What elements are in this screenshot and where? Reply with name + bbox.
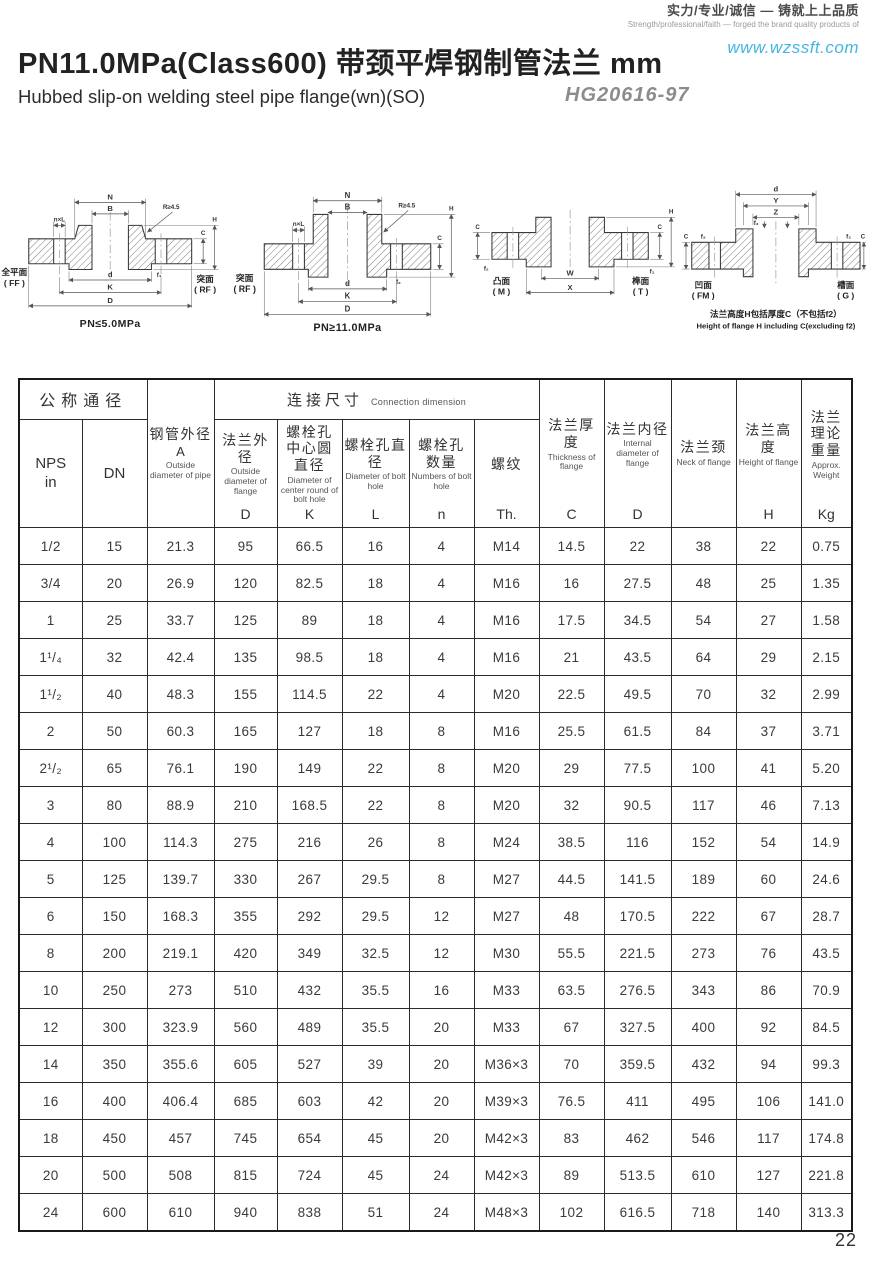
table-cell: 89 bbox=[539, 1157, 604, 1194]
table-cell: 221.8 bbox=[801, 1157, 852, 1194]
table-cell: 406.4 bbox=[147, 1083, 214, 1120]
page-number: 22 bbox=[835, 1230, 857, 1251]
table-cell: 4 bbox=[409, 602, 474, 639]
face-label-g-cn: 槽面 bbox=[837, 279, 855, 290]
table-cell: 1/2 bbox=[19, 528, 82, 565]
table-cell: 116 bbox=[604, 824, 671, 861]
table-cell: 42 bbox=[342, 1083, 409, 1120]
header-group-nominal: 公称通径 bbox=[19, 379, 147, 419]
table-cell: 8 bbox=[409, 861, 474, 898]
table-cell: 165 bbox=[214, 713, 277, 750]
spec-table: 公称通径 钢管外径 A Outside diameter of pipe 连接尺… bbox=[18, 378, 853, 1232]
table-cell: 560 bbox=[214, 1009, 277, 1046]
diagram2-caption: PN≥11.0MPa bbox=[313, 322, 382, 334]
table-cell: 462 bbox=[604, 1120, 671, 1157]
table-cell: 300 bbox=[82, 1009, 147, 1046]
table-cell: 32.5 bbox=[342, 935, 409, 972]
table-cell: 29 bbox=[736, 639, 801, 676]
dim-label-W: W bbox=[567, 268, 575, 277]
table-cell: 88.9 bbox=[147, 787, 214, 824]
face-label-fm-cn: 凹面 bbox=[695, 280, 713, 290]
table-cell: 20 bbox=[82, 565, 147, 602]
table-cell: 95 bbox=[214, 528, 277, 565]
table-cell: 33.7 bbox=[147, 602, 214, 639]
table-cell: 37 bbox=[736, 713, 801, 750]
table-cell: 18 bbox=[342, 565, 409, 602]
dim-label-N: N bbox=[345, 191, 351, 200]
dim-label-H: H bbox=[449, 206, 454, 213]
dim-label-f3-mid: f₃ bbox=[754, 220, 759, 227]
table-cell: 20 bbox=[409, 1009, 474, 1046]
table-cell: M39×3 bbox=[474, 1083, 539, 1120]
table-cell: 29.5 bbox=[342, 861, 409, 898]
table-row: 38088.9210168.5228M203290.5117467.13 bbox=[19, 787, 852, 824]
header-weight: 法兰理论重量 Approx. Weight Kg bbox=[801, 379, 852, 528]
dim-label-C: C bbox=[437, 235, 442, 242]
table-cell: 718 bbox=[671, 1194, 736, 1232]
table-cell: 400 bbox=[82, 1083, 147, 1120]
dim-label-R: R≥4.5 bbox=[163, 204, 180, 211]
table-cell: 16 bbox=[342, 528, 409, 565]
table-cell: 67 bbox=[736, 898, 801, 935]
table-cell: 343 bbox=[671, 972, 736, 1009]
table-cell: 489 bbox=[277, 1009, 342, 1046]
table-cell: 86 bbox=[736, 972, 801, 1009]
table-cell: 65 bbox=[82, 750, 147, 787]
table-cell: 12 bbox=[409, 935, 474, 972]
table-cell: 28.7 bbox=[801, 898, 852, 935]
table-cell: 40 bbox=[82, 676, 147, 713]
table-cell: 32 bbox=[82, 639, 147, 676]
table-cell: 155 bbox=[214, 676, 277, 713]
table-row: 14350355.66055273920M36×370359.54329499.… bbox=[19, 1046, 852, 1083]
table-row: 25060.3165127188M1625.561.584373.71 bbox=[19, 713, 852, 750]
table-cell: 275 bbox=[214, 824, 277, 861]
table-cell: 2¹/₂ bbox=[19, 750, 82, 787]
table-cell: 39 bbox=[342, 1046, 409, 1083]
table-cell: 355 bbox=[214, 898, 277, 935]
table-cell: 139.7 bbox=[147, 861, 214, 898]
table-cell: M27 bbox=[474, 861, 539, 898]
table-cell: 3.71 bbox=[801, 713, 852, 750]
table-cell: 66.5 bbox=[277, 528, 342, 565]
table-cell: 4 bbox=[409, 639, 474, 676]
table-cell: 273 bbox=[671, 935, 736, 972]
flange-diagram-ff-rf: N B n×L R≥4.5 d K D C bbox=[0, 183, 230, 332]
table-row: 2¹/₂6576.1190149228M202977.5100415.20 bbox=[19, 750, 852, 787]
table-cell: 22 bbox=[342, 787, 409, 824]
table-cell: 4 bbox=[409, 528, 474, 565]
table-cell: M42×3 bbox=[474, 1120, 539, 1157]
face-label-t-code: ( T ) bbox=[633, 287, 649, 297]
table-cell: M16 bbox=[474, 639, 539, 676]
table-cell: 600 bbox=[82, 1194, 147, 1232]
table-cell: 420 bbox=[214, 935, 277, 972]
table-cell: 20 bbox=[19, 1157, 82, 1194]
table-row: 12533.712589184M1617.534.554271.58 bbox=[19, 602, 852, 639]
table-cell: 106 bbox=[736, 1083, 801, 1120]
table-cell: 508 bbox=[147, 1157, 214, 1194]
dim-label-R: R≥4.5 bbox=[398, 203, 415, 210]
table-cell: 127 bbox=[277, 713, 342, 750]
page-title: PN11.0MPa(Class600) 带颈平焊钢制管法兰 mm bbox=[18, 40, 663, 82]
dim-label-f2: f₂ bbox=[396, 279, 401, 286]
table-cell: 14 bbox=[19, 1046, 82, 1083]
table-cell: 17.5 bbox=[539, 602, 604, 639]
table-cell: 15 bbox=[82, 528, 147, 565]
table-cell: 22 bbox=[604, 528, 671, 565]
header-flange-od: 法兰外径 Outside diameter of flange D bbox=[214, 419, 277, 528]
dim-label-f2-right: f₂ bbox=[650, 269, 655, 276]
table-cell: M20 bbox=[474, 787, 539, 824]
table-cell: 25 bbox=[736, 565, 801, 602]
table-row: 8200219.142034932.512M3055.5221.52737643… bbox=[19, 935, 852, 972]
flange-diagram-m-t: W X C f₂ C H f₂ 凸面 ( M ) 榫面 ( T ) bbox=[465, 183, 680, 326]
dim-label-f2-left: f₂ bbox=[484, 266, 489, 273]
table-row: 1025027351043235.516M3363.5276.53438670.… bbox=[19, 972, 852, 1009]
table-cell: 51 bbox=[342, 1194, 409, 1232]
face-label-m-code: ( M ) bbox=[493, 287, 511, 297]
table-cell: 18 bbox=[342, 639, 409, 676]
table-cell: 495 bbox=[671, 1083, 736, 1120]
table-cell: 513.5 bbox=[604, 1157, 671, 1194]
spec-table-body: 1/21521.39566.5164M1414.52238220.753/420… bbox=[19, 528, 852, 1232]
table-cell: 24 bbox=[409, 1157, 474, 1194]
table-cell: 76.1 bbox=[147, 750, 214, 787]
table-cell: 3 bbox=[19, 787, 82, 824]
dim-label-C-left: C bbox=[475, 224, 480, 231]
table-cell: 22 bbox=[342, 676, 409, 713]
table-cell: 5.20 bbox=[801, 750, 852, 787]
table-row: 246006109408385124M48×3102616.5718140313… bbox=[19, 1194, 852, 1232]
table-cell: 450 bbox=[82, 1120, 147, 1157]
dim-label-f1: f₁ bbox=[157, 272, 162, 279]
table-cell: M20 bbox=[474, 676, 539, 713]
table-cell: 200 bbox=[82, 935, 147, 972]
table-cell: 67 bbox=[539, 1009, 604, 1046]
face-label-rf-code: ( RF ) bbox=[233, 284, 256, 294]
table-cell: 100 bbox=[671, 750, 736, 787]
table-cell: 141.0 bbox=[801, 1083, 852, 1120]
table-cell: 250 bbox=[82, 972, 147, 1009]
table-cell: 26 bbox=[342, 824, 409, 861]
header-height: 法兰高度 Height of flange H bbox=[736, 379, 801, 528]
table-cell: 120 bbox=[214, 565, 277, 602]
table-cell: 1¹/₂ bbox=[19, 676, 82, 713]
table-cell: 18 bbox=[342, 602, 409, 639]
header-flange-id: 法兰内径 Internal diameter of flange D bbox=[604, 379, 671, 528]
table-cell: M48×3 bbox=[474, 1194, 539, 1232]
dim-label-B: B bbox=[345, 203, 351, 212]
table-cell: 76.5 bbox=[539, 1083, 604, 1120]
table-row: 1¹/₂4048.3155114.5224M2022.549.570322.99 bbox=[19, 676, 852, 713]
table-cell: 24 bbox=[409, 1194, 474, 1232]
table-cell: 8 bbox=[409, 750, 474, 787]
table-cell: M27 bbox=[474, 898, 539, 935]
header-bolt-circle: 螺栓孔中心圆直径 Diameter of center round of bol… bbox=[277, 419, 342, 528]
dim-label-nxL: n×L bbox=[293, 221, 305, 228]
table-cell: 603 bbox=[277, 1083, 342, 1120]
table-cell: 84 bbox=[671, 713, 736, 750]
table-cell: 12 bbox=[409, 898, 474, 935]
table-cell: 190 bbox=[214, 750, 277, 787]
table-cell: 189 bbox=[671, 861, 736, 898]
table-cell: 24.6 bbox=[801, 861, 852, 898]
table-cell: 42.4 bbox=[147, 639, 214, 676]
header-neck: 法兰颈 Neck of flange bbox=[671, 379, 736, 528]
table-cell: 400 bbox=[671, 1009, 736, 1046]
table-cell: 432 bbox=[277, 972, 342, 1009]
table-cell: 83 bbox=[539, 1120, 604, 1157]
table-cell: 29.5 bbox=[342, 898, 409, 935]
table-cell: 127 bbox=[736, 1157, 801, 1194]
table-cell: 90.5 bbox=[604, 787, 671, 824]
table-row: 1¹/₄3242.413598.5184M162143.564292.15 bbox=[19, 639, 852, 676]
diagrams-row: N B n×L R≥4.5 d K D C bbox=[0, 183, 869, 348]
table-row: 12300323.956048935.520M3367327.54009284.… bbox=[19, 1009, 852, 1046]
table-cell: 5 bbox=[19, 861, 82, 898]
flange-diagram-fm-g: d Y Z f₃ C f₃ C f₂ 凹面 ( FM ) 槽面 ( G bbox=[680, 183, 867, 336]
table-cell: 25.5 bbox=[539, 713, 604, 750]
diagram4-note-en: Height of flange H including C(excluding… bbox=[697, 321, 856, 330]
table-cell: M16 bbox=[474, 713, 539, 750]
standard-code: HG20616-97 bbox=[565, 84, 690, 107]
header-dn: DN bbox=[82, 419, 147, 528]
table-cell: 7.13 bbox=[801, 787, 852, 824]
catalog-page: 实力/专业/诚信 — 铸就上上品质 Strength/professional/… bbox=[0, 0, 869, 1261]
table-row: 205005088157244524M42×389513.5610127221.… bbox=[19, 1157, 852, 1194]
dim-label-Z: Z bbox=[774, 208, 779, 217]
table-cell: 22 bbox=[736, 528, 801, 565]
table-cell: 135 bbox=[214, 639, 277, 676]
table-cell: 605 bbox=[214, 1046, 277, 1083]
table-cell: 2.99 bbox=[801, 676, 852, 713]
table-cell: 21 bbox=[539, 639, 604, 676]
table-cell: 359.5 bbox=[604, 1046, 671, 1083]
table-cell: 20 bbox=[409, 1120, 474, 1157]
table-cell: 48 bbox=[539, 898, 604, 935]
table-cell: 41 bbox=[736, 750, 801, 787]
table-cell: 63.5 bbox=[539, 972, 604, 1009]
table-cell: 8 bbox=[409, 713, 474, 750]
face-label-ff-cn: 全平面 bbox=[0, 266, 27, 277]
dim-label-f2-right: f₂ bbox=[846, 233, 851, 240]
table-cell: 22.5 bbox=[539, 676, 604, 713]
table-row: 4100114.3275216268M2438.51161525414.9 bbox=[19, 824, 852, 861]
table-cell: 43.5 bbox=[801, 935, 852, 972]
face-label-rf-cn: 突面 bbox=[196, 273, 214, 284]
table-cell: 77.5 bbox=[604, 750, 671, 787]
table-cell: 49.5 bbox=[604, 676, 671, 713]
table-cell: 8 bbox=[409, 787, 474, 824]
table-row: 1/21521.39566.5164M1414.52238220.75 bbox=[19, 528, 852, 565]
face-label-ff-code: ( FF ) bbox=[4, 278, 25, 288]
table-cell: 27 bbox=[736, 602, 801, 639]
table-cell: 61.5 bbox=[604, 713, 671, 750]
diagram1-caption: PN≤5.0MPa bbox=[80, 318, 141, 330]
table-cell: 216 bbox=[277, 824, 342, 861]
table-cell: 10 bbox=[19, 972, 82, 1009]
table-cell: 616.5 bbox=[604, 1194, 671, 1232]
dim-label-H: H bbox=[212, 217, 217, 224]
table-cell: 50 bbox=[82, 713, 147, 750]
table-row: 6150168.335529229.512M2748170.52226728.7 bbox=[19, 898, 852, 935]
table-cell: 60 bbox=[736, 861, 801, 898]
table-cell: 82.5 bbox=[277, 565, 342, 602]
dim-label-X: X bbox=[568, 283, 574, 292]
table-cell: 125 bbox=[82, 861, 147, 898]
table-cell: 70.9 bbox=[801, 972, 852, 1009]
table-cell: 14.9 bbox=[801, 824, 852, 861]
table-cell: 610 bbox=[147, 1194, 214, 1232]
table-cell: 150 bbox=[82, 898, 147, 935]
table-cell: 8 bbox=[409, 824, 474, 861]
table-cell: 3/4 bbox=[19, 565, 82, 602]
table-cell: 32 bbox=[539, 787, 604, 824]
table-cell: 222 bbox=[671, 898, 736, 935]
table-cell: 98.5 bbox=[277, 639, 342, 676]
table-row: 5125139.733026729.58M2744.5141.51896024.… bbox=[19, 861, 852, 898]
dim-label-nxL: n×L bbox=[54, 217, 65, 224]
flange-diagram-rf: N B n×L R≥4.5 d K D C H f₂ 突面 ( RF ) bbox=[230, 183, 465, 335]
header-bolt-num: 螺栓孔数量 Numbers of bolt hole n bbox=[409, 419, 474, 528]
table-cell: 48 bbox=[671, 565, 736, 602]
table-cell: 26.9 bbox=[147, 565, 214, 602]
table-cell: 89 bbox=[277, 602, 342, 639]
table-cell: 70 bbox=[671, 676, 736, 713]
table-cell: 70 bbox=[539, 1046, 604, 1083]
table-cell: 76 bbox=[736, 935, 801, 972]
table-cell: 546 bbox=[671, 1120, 736, 1157]
table-cell: 84.5 bbox=[801, 1009, 852, 1046]
table-cell: M42×3 bbox=[474, 1157, 539, 1194]
table-cell: 323.9 bbox=[147, 1009, 214, 1046]
table-cell: 35.5 bbox=[342, 1009, 409, 1046]
table-cell: 29 bbox=[539, 750, 604, 787]
table-cell: 355.6 bbox=[147, 1046, 214, 1083]
table-cell: 219.1 bbox=[147, 935, 214, 972]
table-cell: 18 bbox=[19, 1120, 82, 1157]
table-cell: 140 bbox=[736, 1194, 801, 1232]
table-cell: 117 bbox=[671, 787, 736, 824]
table-cell: 273 bbox=[147, 972, 214, 1009]
table-cell: 4 bbox=[409, 565, 474, 602]
table-cell: 20 bbox=[409, 1083, 474, 1120]
table-cell: 38.5 bbox=[539, 824, 604, 861]
face-label-rf-code: ( RF ) bbox=[194, 284, 216, 294]
table-cell: 1¹/₄ bbox=[19, 639, 82, 676]
face-label-fm-code: ( FM ) bbox=[692, 291, 715, 301]
table-cell: 940 bbox=[214, 1194, 277, 1232]
table-cell: 38 bbox=[671, 528, 736, 565]
dim-label-K: K bbox=[107, 283, 113, 292]
table-cell: 457 bbox=[147, 1120, 214, 1157]
table-cell: 349 bbox=[277, 935, 342, 972]
table-cell: 34.5 bbox=[604, 602, 671, 639]
table-cell: M30 bbox=[474, 935, 539, 972]
table-cell: M20 bbox=[474, 750, 539, 787]
table-cell: 64 bbox=[671, 639, 736, 676]
table-cell: 149 bbox=[277, 750, 342, 787]
table-cell: 654 bbox=[277, 1120, 342, 1157]
brand-slogan-cn: 实力/专业/诚信 — 铸就上上品质 bbox=[628, 3, 859, 19]
table-cell: 2 bbox=[19, 713, 82, 750]
face-label-t-cn: 榫面 bbox=[631, 275, 650, 286]
table-cell: 44.5 bbox=[539, 861, 604, 898]
table-cell: 25 bbox=[82, 602, 147, 639]
table-cell: 80 bbox=[82, 787, 147, 824]
table-cell: 54 bbox=[671, 602, 736, 639]
dim-label-N: N bbox=[107, 193, 113, 202]
table-cell: 94 bbox=[736, 1046, 801, 1083]
table-cell: 18 bbox=[342, 713, 409, 750]
table-cell: M33 bbox=[474, 1009, 539, 1046]
table-cell: M16 bbox=[474, 602, 539, 639]
table-cell: 724 bbox=[277, 1157, 342, 1194]
table-cell: M16 bbox=[474, 565, 539, 602]
header-pipe-od: 钢管外径 A Outside diameter of pipe bbox=[147, 379, 214, 528]
face-label-m-cn: 凸面 bbox=[493, 276, 511, 286]
table-cell: 48.3 bbox=[147, 676, 214, 713]
header-thickness: 法兰厚度 Thickness of flange C bbox=[539, 379, 604, 528]
table-cell: 1 bbox=[19, 602, 82, 639]
table-cell: 102 bbox=[539, 1194, 604, 1232]
table-cell: 22 bbox=[342, 750, 409, 787]
table-cell: 168.5 bbox=[277, 787, 342, 824]
table-cell: 276.5 bbox=[604, 972, 671, 1009]
table-cell: M33 bbox=[474, 972, 539, 1009]
table-cell: 500 bbox=[82, 1157, 147, 1194]
table-cell: 350 bbox=[82, 1046, 147, 1083]
table-cell: 330 bbox=[214, 861, 277, 898]
table-cell: 313.3 bbox=[801, 1194, 852, 1232]
table-cell: M36×3 bbox=[474, 1046, 539, 1083]
table-cell: 60.3 bbox=[147, 713, 214, 750]
table-row: 3/42026.912082.5184M161627.548251.35 bbox=[19, 565, 852, 602]
dim-label-f3-left: f₃ bbox=[701, 233, 706, 240]
dim-label-B: B bbox=[107, 204, 113, 213]
table-cell: 4 bbox=[409, 676, 474, 713]
face-label-rf-cn: 突面 bbox=[236, 272, 254, 283]
table-row: 184504577456544520M42×383462546117174.8 bbox=[19, 1120, 852, 1157]
table-cell: 4 bbox=[19, 824, 82, 861]
table-cell: 170.5 bbox=[604, 898, 671, 935]
table-cell: 24 bbox=[19, 1194, 82, 1232]
table-cell: 117 bbox=[736, 1120, 801, 1157]
table-cell: 16 bbox=[539, 565, 604, 602]
table-cell: 45 bbox=[342, 1120, 409, 1157]
table-cell: 141.5 bbox=[604, 861, 671, 898]
table-cell: 16 bbox=[19, 1083, 82, 1120]
dim-label-H: H bbox=[669, 209, 674, 216]
table-cell: 6 bbox=[19, 898, 82, 935]
table-cell: 27.5 bbox=[604, 565, 671, 602]
table-cell: 46 bbox=[736, 787, 801, 824]
table-cell: 114.5 bbox=[277, 676, 342, 713]
table-cell: 92 bbox=[736, 1009, 801, 1046]
dim-label-D: D bbox=[345, 304, 351, 313]
table-cell: 35.5 bbox=[342, 972, 409, 1009]
table-cell: 114.3 bbox=[147, 824, 214, 861]
header-thread: 螺纹 Th. bbox=[474, 419, 539, 528]
table-cell: 174.8 bbox=[801, 1120, 852, 1157]
dim-label-D: D bbox=[107, 296, 113, 305]
table-cell: 2.15 bbox=[801, 639, 852, 676]
table-cell: 99.3 bbox=[801, 1046, 852, 1083]
table-cell: 21.3 bbox=[147, 528, 214, 565]
table-cell: 55.5 bbox=[539, 935, 604, 972]
table-cell: 510 bbox=[214, 972, 277, 1009]
